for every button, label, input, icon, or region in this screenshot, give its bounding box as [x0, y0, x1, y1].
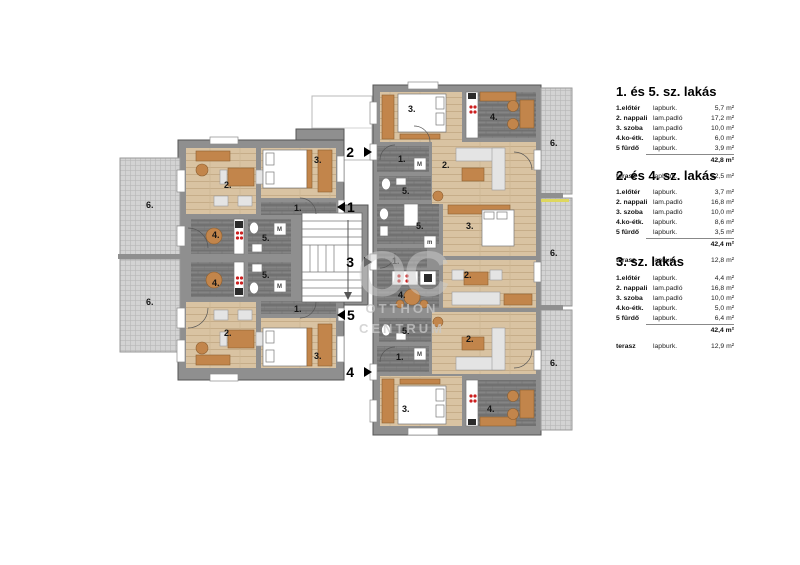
- room-finish: lapburk.: [653, 228, 692, 238]
- legend-row: 1.előtér lapburk. 5,7 m²: [616, 104, 734, 114]
- room-area: 8,6 m²: [692, 218, 734, 228]
- apt3-bath-label: 5.: [416, 221, 424, 231]
- room-area: 10,0 m²: [692, 124, 734, 134]
- room-area: 3,7 m²: [692, 188, 734, 198]
- room-finish: lapburk.: [653, 274, 692, 284]
- room-name: 2. nappali: [616, 114, 653, 124]
- room-area: 3,9 m²: [692, 144, 734, 154]
- apt5-bath-label: 5.: [262, 270, 270, 280]
- room-area: 5,0 m²: [692, 304, 734, 314]
- room-finish: lam.padló: [653, 124, 692, 134]
- room-area: 3,5 m²: [692, 228, 734, 238]
- room-name: 1.előtér: [616, 104, 653, 114]
- room-area: 6,0 m²: [692, 134, 734, 144]
- legend-row: 5 fürdő lapburk. 6,4 m²: [616, 314, 734, 324]
- legend-total-area: 42,4 m²: [646, 238, 734, 250]
- terrace-divider: [537, 193, 563, 198]
- room-finish: lapburk.: [653, 314, 692, 324]
- legend-row: 1.előtér lapburk. 3,7 m²: [616, 188, 734, 198]
- apt1-living-label: 2.: [224, 180, 232, 190]
- legend-row: 2. nappali lam.padló 16,8 m²: [616, 198, 734, 208]
- room-finish: lam.padló: [653, 198, 692, 208]
- legend-row: 2. nappali lam.padló 16,8 m²: [616, 284, 734, 294]
- entry-number: 5: [347, 307, 355, 323]
- room-finish: lapburk.: [653, 134, 692, 144]
- legend-row: 3. szoba lam.padló 10,0 m²: [616, 208, 734, 218]
- apt5-kitchen-label: 4.: [212, 278, 220, 288]
- legend-row: 4.ko-étk. lapburk. 8,6 m²: [616, 218, 734, 228]
- legend-panel: 1. és 5. sz. lakás 1.előtér lapburk. 5,7…: [616, 0, 736, 565]
- terrace-apartment-4: [541, 310, 572, 430]
- apt4-bedroom-label: 3.: [402, 404, 410, 414]
- apt4-living-label: 2.: [466, 334, 474, 344]
- terrace2-label: 6.: [550, 138, 558, 148]
- apt2-living-label: 2.: [442, 160, 450, 170]
- entry-marker-2: 2: [346, 144, 372, 160]
- entry-number: 4: [346, 364, 354, 380]
- apt1-bath-label: 5.: [262, 233, 270, 243]
- legend-total-area: 42,8 m²: [646, 154, 734, 166]
- apt5-washer-label: M: [277, 284, 282, 290]
- room-name: 2. nappali: [616, 198, 653, 208]
- room-name: terasz: [616, 342, 653, 352]
- room-name: 4.ko-étk.: [616, 134, 653, 144]
- apt1-bedroom-label: 3.: [314, 155, 322, 165]
- room-name: 5 fürdő: [616, 144, 653, 154]
- legend-row: 4.ko-étk. lapburk. 6,0 m²: [616, 134, 734, 144]
- terrace-divider: [537, 305, 563, 310]
- room-name: 1.előtér: [616, 188, 653, 198]
- legend-section-apartment-3: 3. sz. lakás 1.előtér lapburk. 4,4 m² 2.…: [616, 254, 734, 352]
- left-wing: M M: [118, 129, 368, 381]
- legend-row: 5 fürdő lapburk. 3,9 m²: [616, 144, 734, 154]
- room-area: 17,2 m²: [692, 114, 734, 124]
- room-finish: lapburk.: [653, 304, 692, 314]
- room-name: 5 fürdő: [616, 314, 653, 324]
- entry-number: 3: [346, 254, 354, 270]
- legend-section-title: 3. sz. lakás: [616, 254, 734, 269]
- entry-porch-wall: [296, 129, 344, 140]
- apt5-entry-label: 1.: [294, 304, 302, 314]
- floorplan-page: M M: [0, 0, 800, 565]
- room-finish: lapburk.: [653, 104, 692, 114]
- room-area: 6,4 m²: [692, 314, 734, 324]
- room-area: 10,0 m²: [692, 208, 734, 218]
- room-finish: lam.padló: [653, 294, 692, 304]
- room-finish: lam.padló: [653, 284, 692, 294]
- legend-row: 1.előtér lapburk. 4,4 m²: [616, 274, 734, 284]
- room-name: 4.ko-étk.: [616, 304, 653, 314]
- terrace3-label: 6.: [550, 248, 558, 258]
- legend-terrace-row: terasz lapburk. 12,9 m²: [616, 342, 734, 352]
- entry-number: 2: [346, 144, 354, 160]
- terrace-accent-strip: [541, 199, 569, 202]
- apt2-washer-label: M: [417, 162, 422, 168]
- legend-section-title: 2. és 4. sz. lakás: [616, 168, 734, 183]
- watermark-line2: CENTRUM: [359, 321, 445, 336]
- apt2-kitchen-label: 4.: [490, 112, 498, 122]
- room-finish: lapburk.: [653, 188, 692, 198]
- room-area: 10,0 m²: [692, 294, 734, 304]
- legend-row: 3. szoba lam.padló 10,0 m²: [616, 124, 734, 134]
- room-name: 3. szoba: [616, 294, 653, 304]
- room-name: 1.előtér: [616, 274, 653, 284]
- apt1-entry-label: 1.: [294, 203, 302, 213]
- room-area: 16,8 m²: [692, 284, 734, 294]
- terrace5-label: 6.: [146, 297, 154, 307]
- legend-row: 4.ko-étk. lapburk. 5,0 m²: [616, 304, 734, 314]
- apt1-kitchen-label: 4.: [212, 230, 220, 240]
- legend-section-apartments-2-4: 2. és 4. sz. lakás 1.előtér lapburk. 3,7…: [616, 168, 734, 266]
- apt4-kitchen-label: 4.: [487, 404, 495, 414]
- room-finish: lapburk.: [653, 218, 692, 228]
- legend-section-title: 1. és 5. sz. lakás: [616, 84, 734, 99]
- apt1-washer-label: M: [277, 227, 282, 233]
- legend-total-area: 42,4 m²: [646, 324, 734, 336]
- entry-number: 1: [347, 199, 355, 215]
- room-name: 3. szoba: [616, 124, 653, 134]
- terrace-divider: [118, 254, 182, 259]
- legend-row: 5 fürdő lapburk. 3,5 m²: [616, 228, 734, 238]
- apt4-washer-label: M: [417, 352, 422, 358]
- apt4-entry-label: 1.: [396, 352, 404, 362]
- room-finish: lapburk.: [653, 342, 692, 352]
- apt3-living-label: 2.: [464, 270, 472, 280]
- apt2-bedroom-label: 3.: [408, 104, 416, 114]
- room-area: 12,9 m²: [692, 342, 734, 352]
- legend-row: 3. szoba lam.padló 10,0 m²: [616, 294, 734, 304]
- room-area: 5,7 m²: [692, 104, 734, 114]
- apt2-bath-label: 5.: [402, 186, 410, 196]
- watermark: OC OTTHON CENTRUM: [357, 238, 449, 336]
- room-area: 4,4 m²: [692, 274, 734, 284]
- room-finish: lam.padló: [653, 208, 692, 218]
- room-name: 2. nappali: [616, 284, 653, 294]
- legend-row: 2. nappali lam.padló 17,2 m²: [616, 114, 734, 124]
- room-name: 5 fürdő: [616, 228, 653, 238]
- apt5-living-label: 2.: [224, 328, 232, 338]
- room-name: 4.ko-étk.: [616, 218, 653, 228]
- terrace1-label: 6.: [146, 200, 154, 210]
- apt2-entry-label: 1.: [398, 154, 406, 164]
- apt3-bedroom-label: 3.: [466, 221, 474, 231]
- room-name: 3. szoba: [616, 208, 653, 218]
- room-finish: lapburk.: [653, 144, 692, 154]
- apt5-bedroom-label: 3.: [314, 351, 322, 361]
- watermark-line1: OTTHON: [366, 301, 439, 316]
- room-area: 16,8 m²: [692, 198, 734, 208]
- entry-marker-4: 4: [346, 364, 372, 380]
- watermark-logo: OC: [357, 238, 449, 310]
- room-finish: lam.padló: [653, 114, 692, 124]
- terrace4-label: 6.: [550, 358, 558, 368]
